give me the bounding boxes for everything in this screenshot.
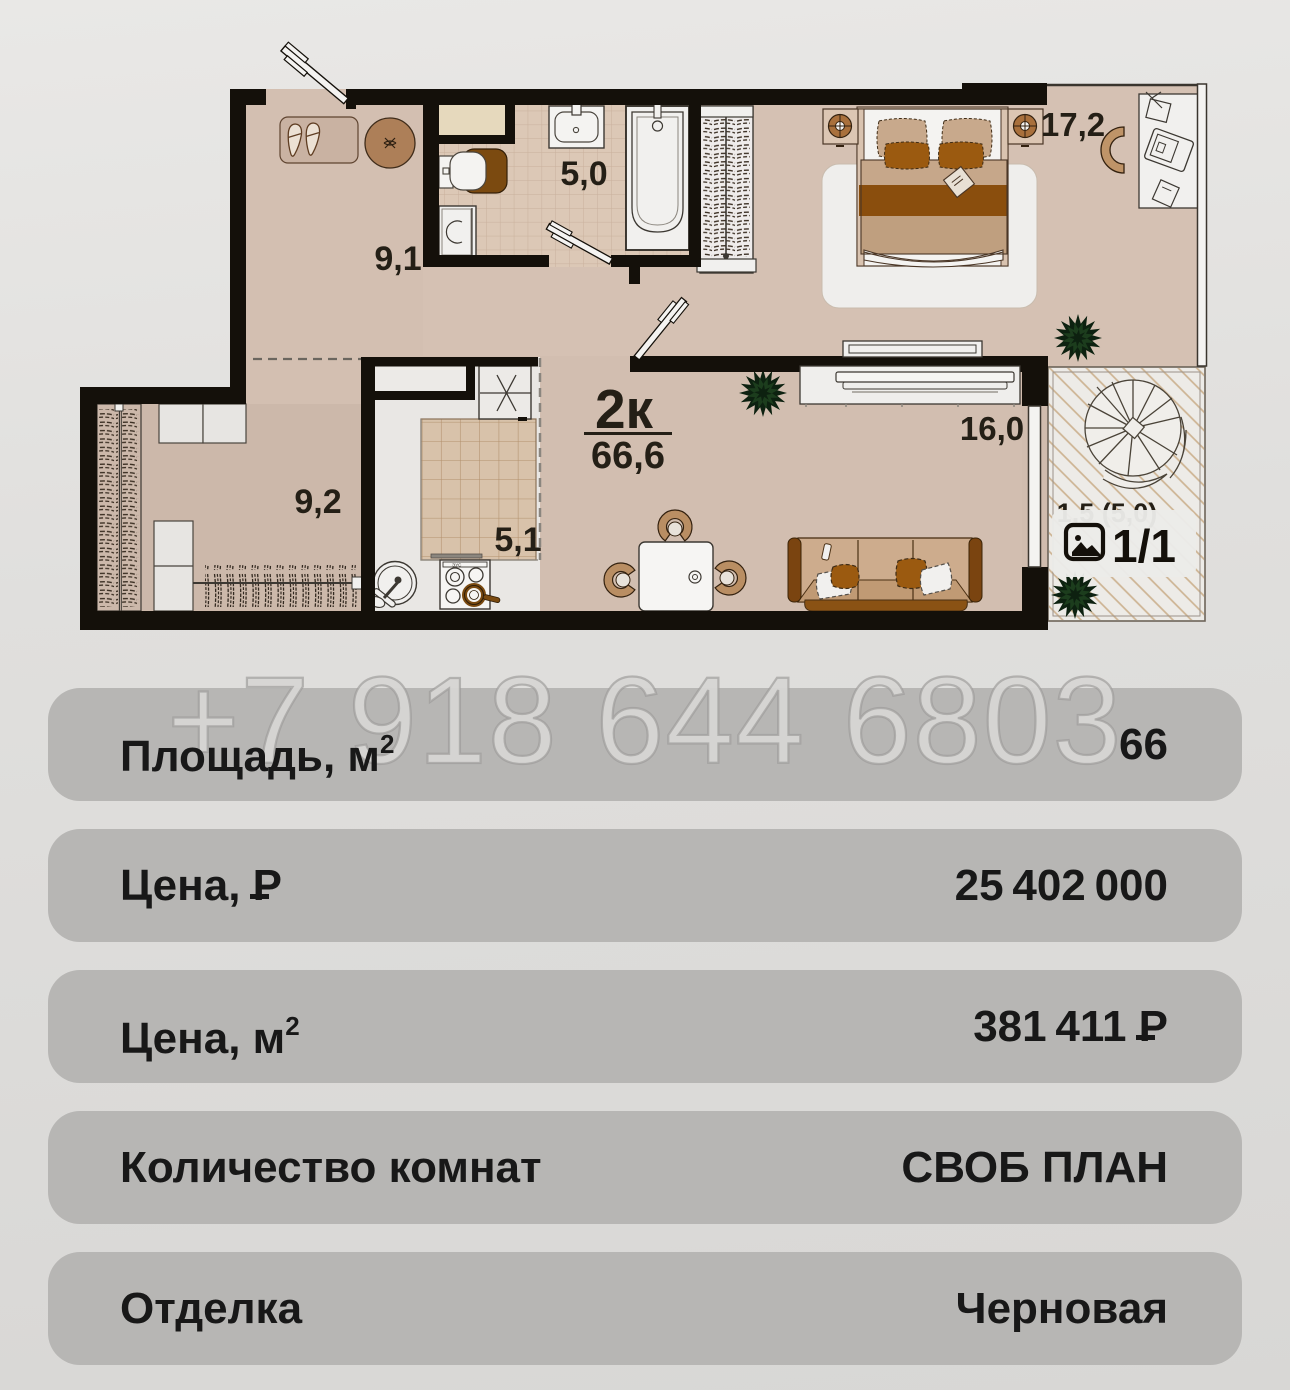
svg-text:5,1: 5,1 <box>494 521 541 559</box>
svg-text:17,2: 17,2 <box>1041 106 1105 143</box>
svg-text:ЭУС: ЭУС <box>452 563 462 568</box>
svg-text:2к: 2к <box>595 378 654 440</box>
svg-text:5,0: 5,0 <box>560 155 607 193</box>
svg-text:1/1: 1/1 <box>1112 520 1176 572</box>
svg-text:9,1: 9,1 <box>374 240 421 278</box>
svg-text:66,6: 66,6 <box>591 435 665 477</box>
svg-text:9,2: 9,2 <box>294 483 341 521</box>
svg-text:16,0: 16,0 <box>960 410 1024 447</box>
